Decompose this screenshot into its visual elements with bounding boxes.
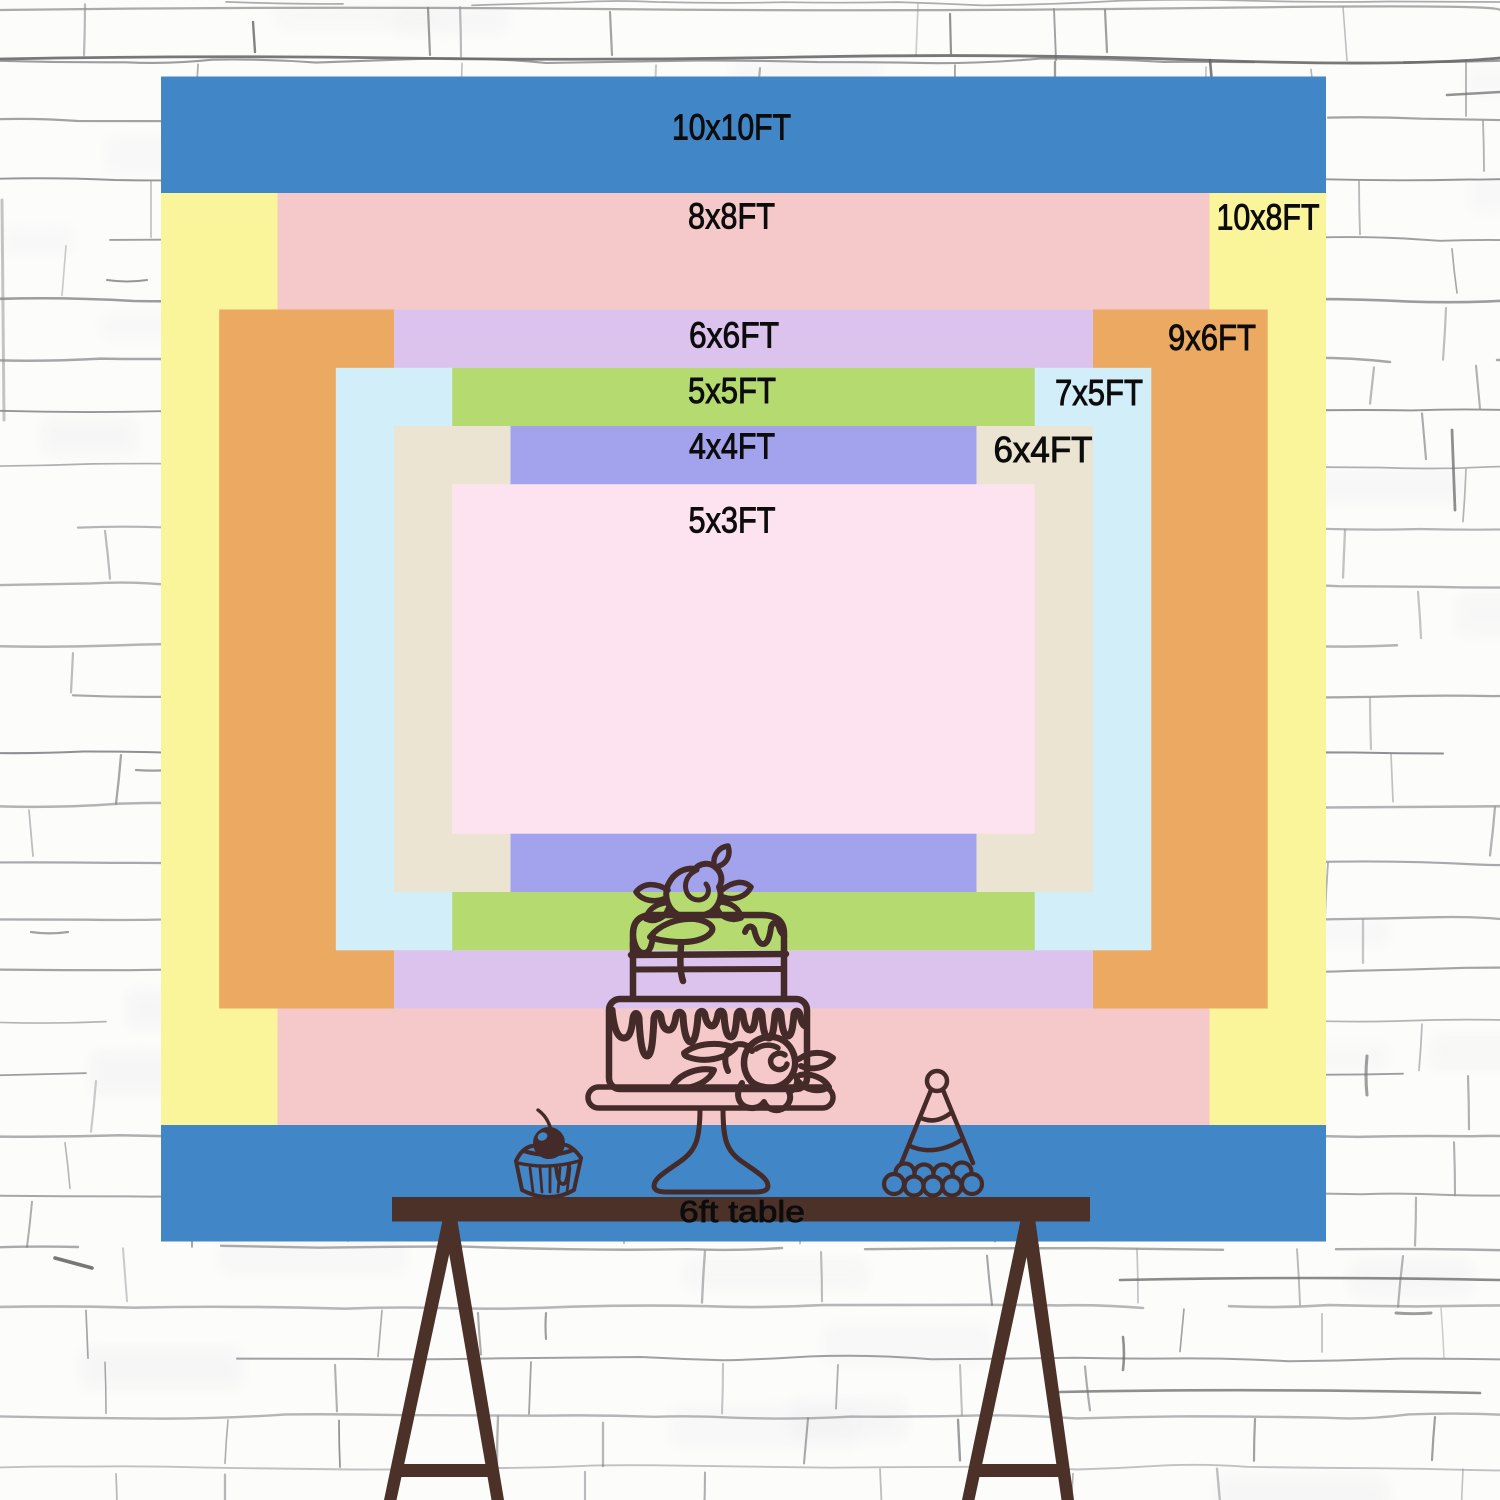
svg-text:6x6FT: 6x6FT — [689, 314, 779, 355]
svg-text:7x5FT: 7x5FT — [1055, 372, 1143, 413]
svg-text:8x8FT: 8x8FT — [688, 196, 775, 237]
svg-text:9x6FT: 9x6FT — [1168, 317, 1256, 358]
svg-text:6ft table: 6ft table — [679, 1194, 805, 1229]
svg-text:4x4FT: 4x4FT — [689, 426, 775, 467]
svg-text:10x8FT: 10x8FT — [1217, 197, 1320, 238]
svg-text:10x10FT: 10x10FT — [672, 107, 791, 148]
svg-text:6x4FT: 6x4FT — [994, 429, 1093, 470]
svg-text:5x5FT: 5x5FT — [688, 370, 776, 411]
svg-text:5x3FT: 5x3FT — [689, 500, 776, 541]
